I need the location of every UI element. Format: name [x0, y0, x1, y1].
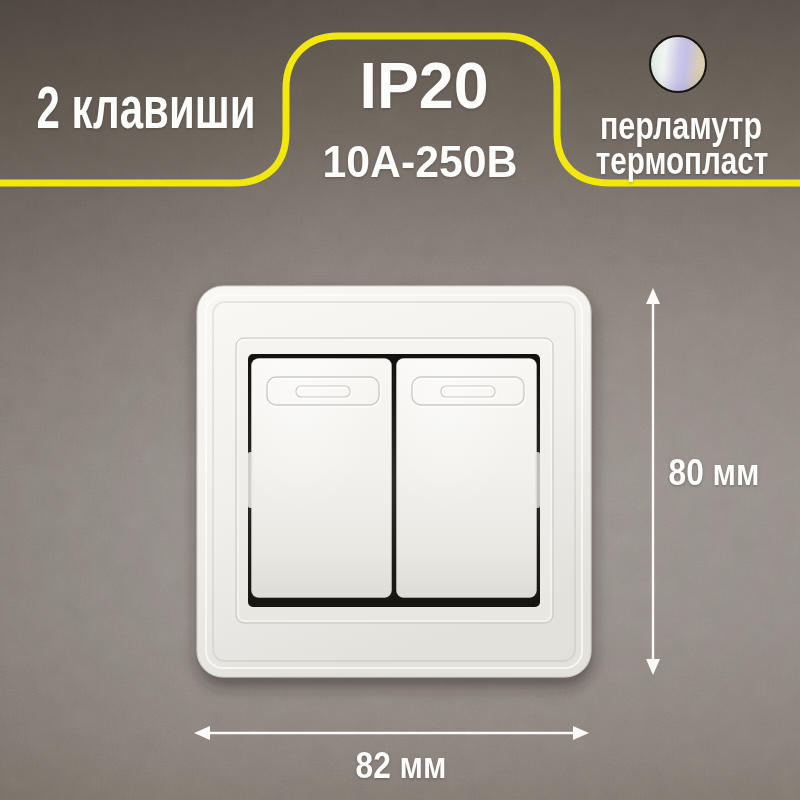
height-dimension-arrow	[646, 288, 660, 675]
switch-key-right	[397, 359, 537, 598]
material-type-label: термопласт	[596, 142, 769, 180]
switch-key-left	[252, 359, 392, 598]
height-dimension-label: 80 мм	[669, 455, 760, 491]
key-latch-notch-left	[248, 452, 253, 508]
width-dimension-arrow	[194, 726, 589, 740]
voltage-rating-label: 10А-250В	[323, 139, 518, 184]
keys-count-label: 2 клавиши	[36, 78, 255, 138]
ip-rating-label: IP20	[359, 54, 488, 118]
pearl-color-swatch	[649, 35, 707, 93]
width-dimension-label: 82 мм	[356, 748, 447, 784]
key-latch-notch-right	[535, 452, 540, 508]
product-photo: 2 клавиши IP20 10А-250В перламутр термоп…	[0, 0, 800, 800]
